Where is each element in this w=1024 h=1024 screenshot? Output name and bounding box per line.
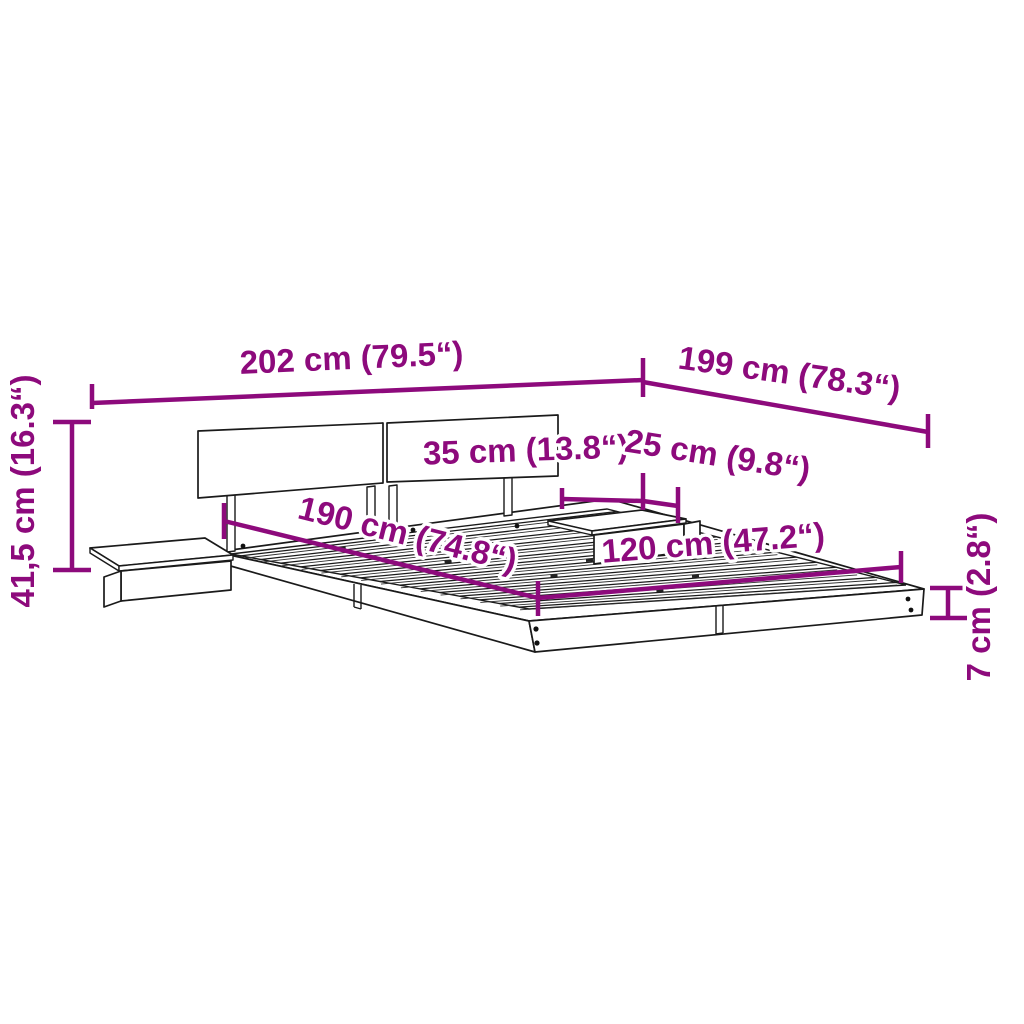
label-total-width: 202 cm (79.5“) bbox=[239, 334, 464, 381]
dim-headboard-height bbox=[53, 422, 91, 570]
label-shelf-width: 35 cm (13.8“) bbox=[422, 427, 629, 471]
headboard-panel-left bbox=[198, 423, 383, 498]
label-frame-height: 7 cm (2.8“) bbox=[960, 513, 997, 682]
label-headboard-height: 41,5 cm (16.3“) bbox=[4, 375, 41, 608]
bed-dimension-diagram: 202 cm (79.5“) 199 cm (78.3“) 41,5 cm (1… bbox=[0, 0, 1024, 1024]
label-total-depth: 199 cm (78.3“) bbox=[676, 339, 903, 407]
diagram-canvas: 202 cm (79.5“) 199 cm (78.3“) 41,5 cm (1… bbox=[0, 0, 1024, 1024]
label-shelf-depth: 25 cm (9.8“) bbox=[623, 422, 814, 488]
nightstand-left bbox=[90, 538, 233, 607]
